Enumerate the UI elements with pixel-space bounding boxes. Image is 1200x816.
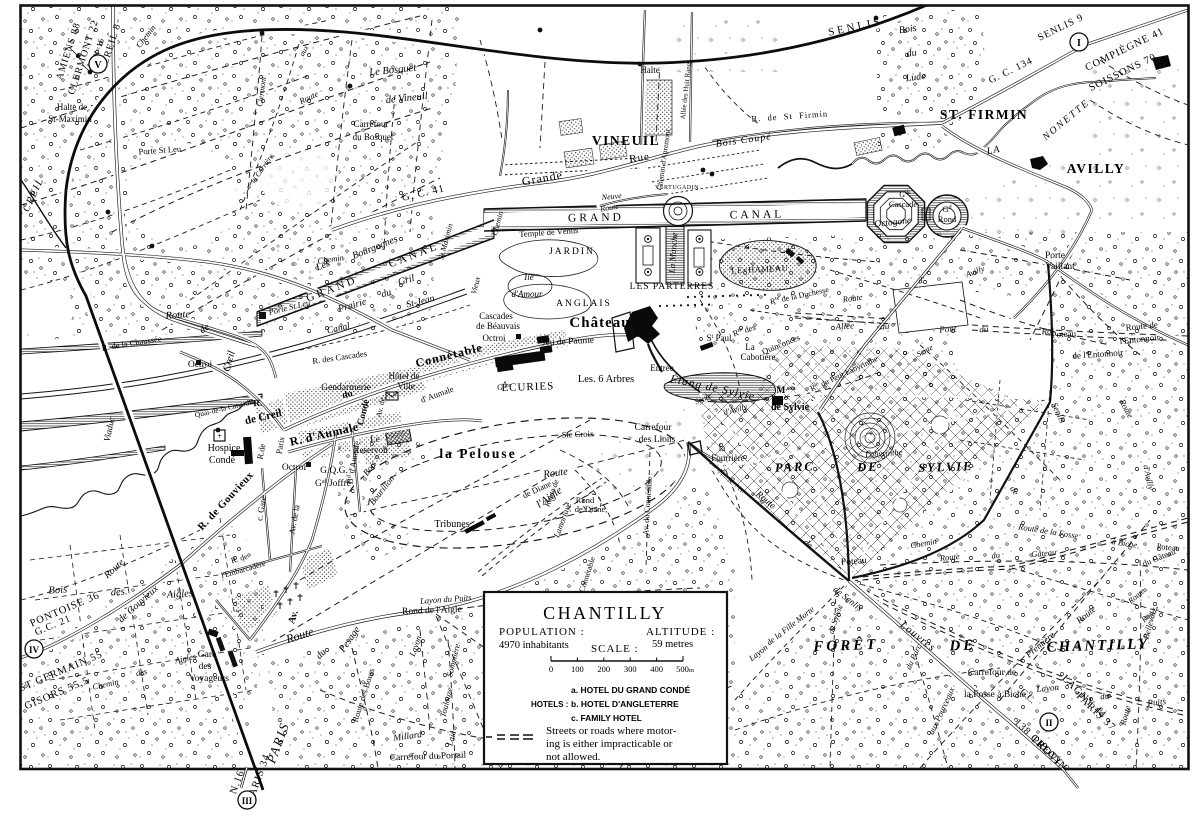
svg-text:Bois: Bois bbox=[48, 584, 67, 596]
svg-text:CANAL: CANAL bbox=[730, 209, 785, 222]
svg-text:b. HOTEL D'ANGLETERRE: b. HOTEL D'ANGLETERRE bbox=[571, 699, 679, 709]
svg-text:Voyageurs: Voyageurs bbox=[189, 674, 229, 684]
svg-text:300: 300 bbox=[624, 664, 637, 674]
svg-text:a. HOTEL DU GRAND CONDÉ: a. HOTEL DU GRAND CONDÉ bbox=[571, 685, 691, 695]
svg-text:+: + bbox=[217, 431, 222, 441]
svg-text:Ste Croix: Ste Croix bbox=[562, 428, 595, 439]
svg-text:PARC: PARC bbox=[775, 459, 815, 474]
svg-text:La: La bbox=[745, 342, 755, 352]
svg-text:St Paul: St Paul bbox=[707, 333, 732, 343]
svg-text:Poteau: Poteau bbox=[1051, 328, 1077, 340]
svg-text:Carrefour: Carrefour bbox=[354, 119, 389, 129]
svg-text:Rond: Rond bbox=[938, 214, 957, 224]
svg-text:AVILLY: AVILLY bbox=[1067, 161, 1126, 176]
svg-text:Route: Route bbox=[164, 309, 191, 322]
svg-text:VINEUIL: VINEUIL bbox=[592, 133, 660, 148]
svg-text:Fourrière: Fourrière bbox=[711, 453, 745, 463]
svg-text:Streets or roads where motor-: Streets or roads where motor- bbox=[546, 725, 677, 737]
svg-text:Ville: Ville bbox=[397, 381, 414, 391]
svg-text:Cascade: Cascade bbox=[889, 199, 918, 209]
svg-text:Halte de: Halte de bbox=[57, 102, 87, 112]
svg-text:DE: DE bbox=[948, 638, 976, 655]
svg-text:du: du bbox=[906, 47, 917, 59]
svg-text:0: 0 bbox=[549, 664, 553, 674]
svg-text:Aigles: Aigles bbox=[165, 588, 193, 601]
svg-text:c. FAMILY HOTEL: c. FAMILY HOTEL bbox=[571, 713, 642, 723]
svg-text:Gare: Gare bbox=[198, 650, 216, 660]
svg-text:de Diane,: de Diane, bbox=[575, 504, 608, 514]
svg-text:Poteau: Poteau bbox=[841, 556, 868, 568]
svg-text:LES PARTERRES: LES PARTERRES bbox=[630, 282, 715, 292]
svg-text:Carrefour de: Carrefour de bbox=[968, 667, 1016, 678]
svg-text:Carrefour: Carrefour bbox=[635, 422, 673, 433]
svg-text:III: III bbox=[242, 796, 253, 806]
svg-text:POPULATION :: POPULATION : bbox=[499, 626, 585, 638]
svg-text:ST. FIRMIN: ST. FIRMIN bbox=[940, 107, 1028, 122]
svg-text:R.: R. bbox=[253, 399, 263, 410]
svg-text:des: des bbox=[110, 587, 125, 599]
svg-text:la: la bbox=[719, 443, 726, 453]
svg-text:du: du bbox=[1100, 691, 1110, 702]
svg-text:G.Q.G.: G.Q.G. bbox=[320, 466, 348, 476]
svg-text:d'Amour: d'Amour bbox=[512, 289, 543, 299]
svg-text:200: 200 bbox=[597, 664, 610, 674]
svg-text:400: 400 bbox=[650, 664, 663, 674]
svg-text:FORÊT: FORÊT bbox=[812, 636, 879, 655]
svg-text:Octroi: Octroi bbox=[188, 360, 213, 370]
svg-text:JARDIN: JARDIN bbox=[549, 247, 595, 257]
svg-text:GRAND: GRAND bbox=[568, 212, 624, 225]
svg-text:Octroi: Octroi bbox=[282, 463, 307, 473]
svg-text:SYLVIE: SYLVIE bbox=[918, 459, 974, 475]
svg-text:la Fosse à Biche: la Fosse à Biche bbox=[964, 690, 1026, 700]
svg-text:59 metres: 59 metres bbox=[652, 639, 693, 650]
svg-text:de Béauvais: de Béauvais bbox=[476, 321, 520, 331]
svg-text:ANGLAIS: ANGLAIS bbox=[556, 299, 612, 309]
svg-text:Halte: Halte bbox=[640, 65, 660, 75]
svg-text:DE: DE bbox=[856, 460, 879, 475]
svg-text:du: du bbox=[979, 324, 989, 335]
svg-text:Vaillant: Vaillant bbox=[1045, 262, 1075, 272]
svg-text:ALTITUDE :: ALTITUDE : bbox=[646, 626, 715, 638]
svg-text:du: du bbox=[880, 321, 890, 332]
svg-text:not allowed.: not allowed. bbox=[546, 751, 601, 763]
svg-text:St-Maximin: St-Maximin bbox=[48, 114, 92, 124]
svg-text:Le: Le bbox=[370, 434, 380, 444]
svg-text:IV: IV bbox=[29, 645, 40, 655]
svg-text:HOTELS :: HOTELS : bbox=[531, 700, 568, 709]
svg-text:ÉCURIES: ÉCURIES bbox=[501, 380, 554, 394]
svg-text:ing is either impracticable o: ing is either impracticable or bbox=[546, 738, 673, 750]
svg-text:VERTUGADIN: VERTUGADIN bbox=[655, 185, 699, 191]
svg-text:Château: Château bbox=[569, 315, 630, 331]
svg-text:Puits: Puits bbox=[1146, 696, 1167, 708]
svg-text:des Lions: des Lions bbox=[639, 435, 676, 445]
svg-text:100: 100 bbox=[571, 664, 584, 674]
svg-text:Hospice: Hospice bbox=[208, 443, 241, 454]
svg-text:SCALE :: SCALE : bbox=[591, 643, 639, 655]
svg-text:des: des bbox=[199, 662, 212, 672]
svg-text:CHANTILLY: CHANTILLY bbox=[543, 603, 667, 623]
svg-text:I: I bbox=[1077, 38, 1081, 49]
svg-text:Entrée: Entrée bbox=[650, 363, 673, 373]
svg-text:Octroi: Octroi bbox=[483, 333, 506, 343]
svg-text:du Bosquet: du Bosquet bbox=[353, 132, 394, 142]
svg-text:Porte: Porte bbox=[1045, 251, 1065, 261]
svg-text:Rond de l'Aigle: Rond de l'Aigle bbox=[402, 605, 462, 617]
svg-text:Allée: Allée bbox=[834, 320, 854, 331]
svg-text:II: II bbox=[1045, 718, 1053, 728]
svg-text:V: V bbox=[94, 60, 102, 71]
svg-text:Ile: Ile bbox=[523, 272, 534, 282]
svg-text:Hôtel de: Hôtel de bbox=[389, 371, 420, 381]
svg-text:de Sylvie: de Sylvie bbox=[771, 402, 810, 413]
svg-text:Condé: Condé bbox=[209, 455, 236, 466]
svg-text:la Pelouse: la Pelouse bbox=[439, 446, 516, 461]
svg-text:Les. 6 Arbres: Les. 6 Arbres bbox=[578, 374, 634, 385]
svg-text:4970 inhabitants: 4970 inhabitants bbox=[499, 640, 569, 651]
svg-text:Tribunes: Tribunes bbox=[434, 519, 469, 530]
svg-text:Pont: Pont bbox=[938, 323, 957, 334]
svg-text:du: du bbox=[991, 550, 1000, 561]
svg-text:Cascades: Cascades bbox=[479, 311, 513, 321]
